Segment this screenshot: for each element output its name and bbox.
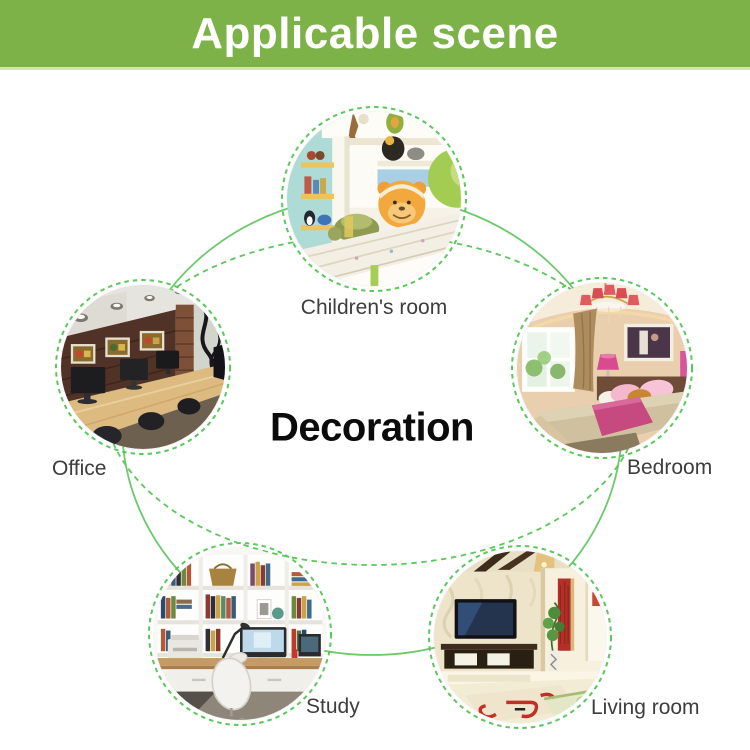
center-title: Decoration	[270, 406, 474, 451]
scene-label-living-room: Living room	[591, 696, 700, 720]
scene-photo-living-room	[434, 551, 606, 723]
children-room-illustration	[287, 112, 461, 286]
living-room-illustration	[434, 551, 606, 723]
scene-photo-office	[61, 285, 225, 449]
bedroom-illustration	[517, 283, 687, 453]
scene-photo-bedroom	[517, 283, 687, 453]
scene-label-study: Study	[306, 695, 360, 719]
study-illustration	[154, 548, 326, 720]
scene-photo-study	[154, 548, 326, 720]
scene-photo-children-room	[287, 112, 461, 286]
page: Applicable scene	[0, 0, 750, 750]
office-illustration	[61, 285, 225, 449]
scene-label-children-room: Children's room	[301, 296, 447, 320]
scene-label-office: Office	[52, 457, 106, 481]
scene-label-bedroom: Bedroom	[627, 456, 712, 480]
